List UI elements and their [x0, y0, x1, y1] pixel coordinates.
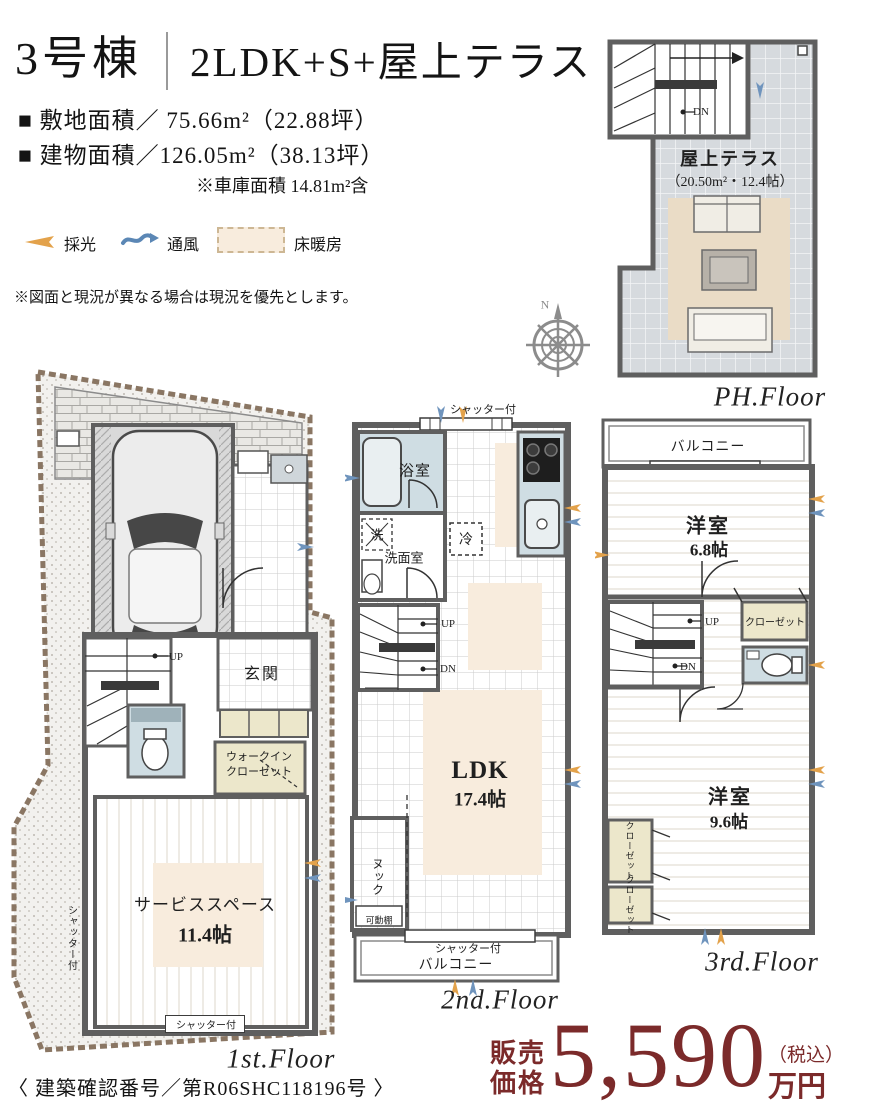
plan-type-title: 2LDK+S+屋上テラス [190, 28, 592, 88]
ventilation-label: 通風 [167, 231, 199, 255]
first-floor-name: 1st.Floor [227, 1044, 336, 1075]
ph-stairs [610, 42, 748, 137]
ph-floor-name: PH.Floor [714, 382, 826, 413]
service-space-label: サービススペース [134, 891, 276, 916]
floor-heating-swatch [217, 227, 285, 253]
closet-left-1-label: クローゼット [624, 821, 637, 881]
ventilation-icon [120, 230, 160, 250]
closet-right-label: クローゼット [745, 614, 805, 629]
ph-stair-dn-label: DN [693, 106, 709, 118]
washer-label: 洗 [370, 525, 383, 544]
first-floor-plan [5, 365, 350, 1065]
dining-heating-rug [468, 583, 542, 670]
price-unit: 万円 [768, 1063, 826, 1105]
service-space-area: 11.4帖 [178, 919, 232, 948]
nook-label: ヌック [370, 858, 387, 897]
ldk-area-label: 17.4帖 [454, 785, 506, 812]
confirmation-number: 〈 建築確認番号／第R06SHC118196号 〉 [8, 1072, 395, 1101]
stairs-2f-up-label: UP [441, 618, 455, 630]
room-b-area-label: 9.6帖 [710, 808, 748, 833]
shutter-top-label-2f: シャッター付 [450, 401, 516, 417]
terrace-label: 屋上テラス [680, 145, 780, 171]
fridge-label: 冷 [459, 529, 473, 549]
stairs-2f [358, 605, 438, 690]
compass-rose-icon [520, 293, 600, 398]
stairs-3f [608, 602, 702, 687]
kitchen-counter [518, 432, 565, 556]
room-b-label: 洋室 [708, 781, 752, 810]
price-label-line2: 価格 [490, 1063, 546, 1100]
compass-north-label: N [541, 298, 550, 313]
toilet-1f [128, 705, 184, 777]
title-divider [166, 32, 168, 90]
stairs-1f-up-label: UP [169, 651, 183, 663]
car [106, 431, 224, 654]
disclaimer-note: ※図面と現況が異なる場合は現況を優先とします。 [14, 286, 358, 307]
washroom-label: 洗面室 [384, 548, 423, 567]
second-floor-name: 2nd.Floor [441, 985, 559, 1016]
stairs-2f-dn-label: DN [440, 663, 456, 675]
floor-plan-flyer: 3号棟 2LDK+S+屋上テラス ■ 敷地面積／ 75.66m²（22.88坪）… [0, 0, 878, 1108]
closet-left-2-label: クローゼット [624, 875, 637, 935]
kitchen-heating-strip [495, 443, 518, 547]
shutter-left-label-1f: シャッター付 [64, 905, 79, 971]
room-a-label: 洋室 [686, 510, 730, 539]
site-area-text: ■ 敷地面積／ 75.66m²（22.88坪） [18, 101, 379, 135]
stairs-3f-dn-label: DN [680, 661, 696, 673]
shutter-bottom-label-1f: シャッター付 [176, 1017, 236, 1032]
floor-heating-label: 床暖房 [294, 231, 342, 255]
stairs-3f-up-label: UP [705, 616, 719, 628]
building-area-text: ■ 建物面積／126.05m²（38.13坪） [18, 136, 384, 170]
shoe-cabinet [220, 710, 308, 737]
building-number: 3号棟 [15, 22, 142, 88]
meter-box [57, 431, 79, 446]
room-a-area-label: 6.8帖 [690, 536, 728, 561]
balcony-label-3f: バルコニー [671, 436, 746, 456]
bathroom-label: 浴室 [399, 460, 431, 481]
wic-label-2: クローゼット [226, 763, 292, 779]
vent-box [798, 46, 807, 55]
utility-box-1 [238, 451, 268, 473]
movable-shelf-label: 可動棚 [365, 914, 392, 927]
genkan-label: 玄関 [244, 660, 280, 684]
daylight-icon [24, 233, 60, 249]
wic-label-1: ウォークイン [226, 748, 292, 764]
third-floor-name: 3rd.Floor [705, 947, 819, 978]
entrance-approach [233, 465, 307, 655]
price-amount: 5,590 [550, 1002, 767, 1108]
terrace-area-label: （20.50m²・12.4帖） [666, 171, 793, 191]
ph-floor-plan [600, 28, 850, 393]
ldk-label: LDK [451, 757, 508, 785]
garage-area-note: ※車庫面積 14.81m²含 [196, 172, 368, 198]
daylight-label: 採光 [64, 231, 96, 255]
balcony-label-2f: バルコニー [419, 954, 494, 974]
